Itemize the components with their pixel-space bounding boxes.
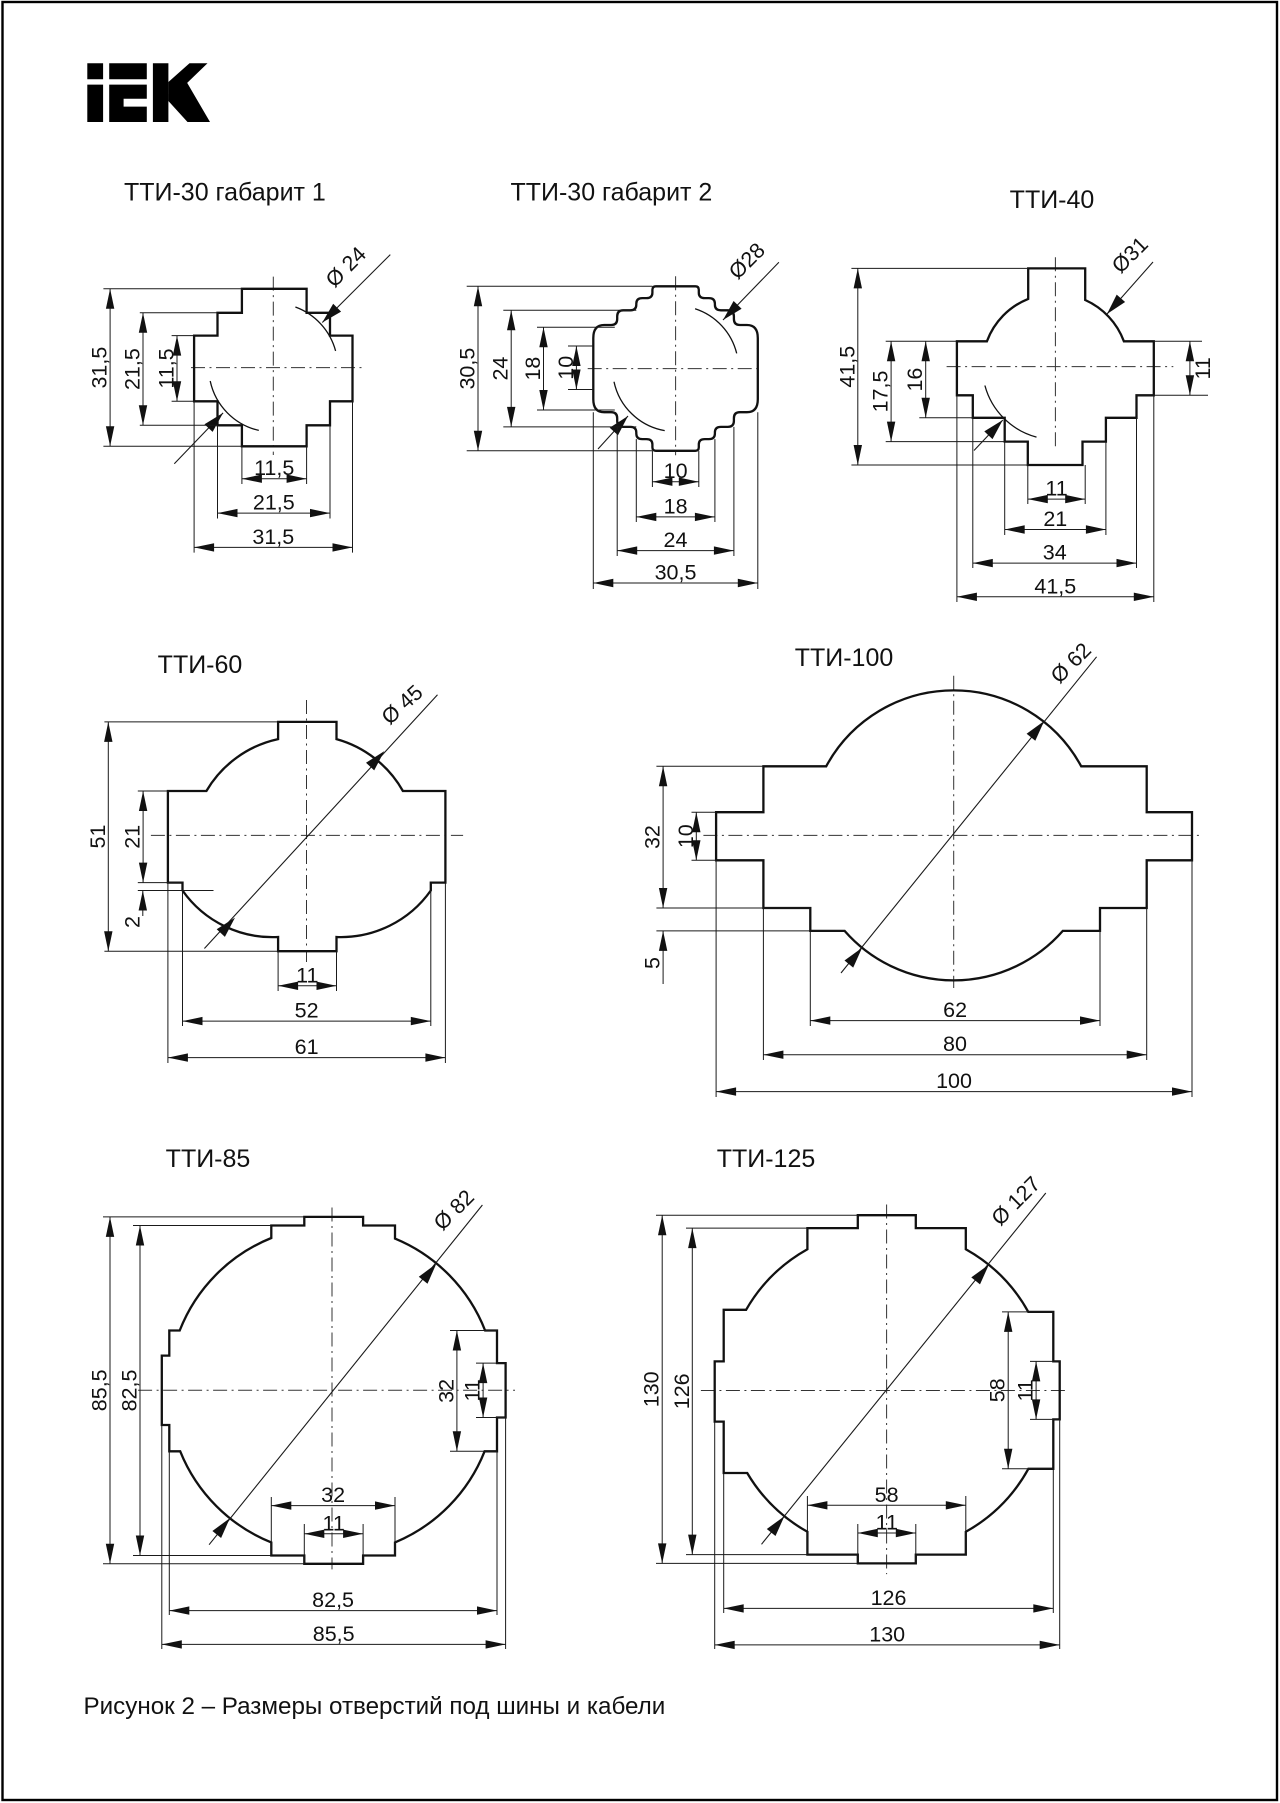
svg-text:17,5: 17,5 [869,371,893,413]
svg-text:130: 130 [869,1622,905,1646]
svg-text:58: 58 [875,1483,899,1507]
svg-text:51: 51 [86,825,110,849]
svg-text:10: 10 [554,356,578,380]
svg-text:11,5: 11,5 [254,456,294,480]
svg-text:10: 10 [674,824,698,848]
svg-text:ТТИ-30 габарит 1: ТТИ-30 габарит 1 [124,179,326,207]
svg-text:11: 11 [296,963,318,987]
svg-text:30,5: 30,5 [655,561,697,585]
svg-text:31,5: 31,5 [252,525,294,549]
svg-text:32: 32 [641,825,665,849]
svg-text:58: 58 [986,1378,1010,1402]
svg-text:Ø 82: Ø 82 [429,1185,479,1235]
svg-text:32: 32 [434,1379,458,1403]
svg-text:2: 2 [121,916,145,928]
svg-text:126: 126 [670,1373,694,1409]
svg-text:62: 62 [943,998,967,1022]
svg-text:85,5: 85,5 [88,1369,112,1411]
svg-text:82,5: 82,5 [118,1370,142,1412]
svg-text:24: 24 [664,528,688,552]
svg-text:85,5: 85,5 [313,1622,355,1646]
svg-text:Ø 24: Ø 24 [321,242,371,292]
svg-text:130: 130 [640,1371,664,1407]
svg-text:80: 80 [943,1032,967,1056]
svg-text:11: 11 [1191,357,1215,379]
svg-text:21: 21 [1043,507,1067,531]
svg-text:18: 18 [521,357,545,381]
svg-text:11: 11 [1045,477,1067,501]
svg-text:ТТИ-40: ТТИ-40 [1010,186,1095,214]
svg-text:31,5: 31,5 [88,347,112,389]
svg-text:5: 5 [641,957,665,969]
svg-text:18: 18 [664,494,688,518]
svg-text:52: 52 [295,999,319,1023]
svg-text:11: 11 [1014,1379,1038,1401]
svg-text:11: 11 [461,1379,485,1401]
svg-text:21,5: 21,5 [121,348,145,390]
svg-text:34: 34 [1043,541,1067,565]
svg-text:11: 11 [876,1511,898,1535]
svg-text:21,5: 21,5 [253,491,295,515]
svg-text:Ø 45: Ø 45 [377,680,428,729]
svg-text:Ø28: Ø28 [724,238,770,284]
svg-text:100: 100 [936,1069,972,1093]
svg-text:24: 24 [489,357,513,381]
svg-text:ТТИ-100: ТТИ-100 [795,644,894,672]
svg-text:61: 61 [295,1035,319,1059]
svg-text:ТТИ-60: ТТИ-60 [158,651,243,679]
svg-text:Ø 127: Ø 127 [987,1172,1045,1230]
svg-text:41,5: 41,5 [1034,574,1076,598]
svg-text:Рисунок 2 – Размеры отверстий: Рисунок 2 – Размеры отверстий под шины и… [84,1693,666,1720]
svg-text:41,5: 41,5 [835,346,859,388]
svg-text:82,5: 82,5 [312,1588,354,1612]
svg-text:11,5: 11,5 [155,348,179,388]
svg-text:32: 32 [321,1483,345,1507]
svg-text:ТТИ-30 габарит 2: ТТИ-30 габарит 2 [510,179,712,207]
svg-text:Ø 62: Ø 62 [1046,638,1096,688]
svg-text:ТТИ-125: ТТИ-125 [717,1145,816,1173]
svg-text:Ø31: Ø31 [1107,232,1153,278]
svg-text:126: 126 [871,1586,907,1610]
svg-text:16: 16 [903,368,927,392]
svg-text:30,5: 30,5 [456,348,480,390]
svg-text:ТТИ-85: ТТИ-85 [166,1145,251,1173]
svg-text:10: 10 [664,459,688,483]
svg-text:21: 21 [121,825,145,849]
svg-text:11: 11 [323,1511,345,1535]
